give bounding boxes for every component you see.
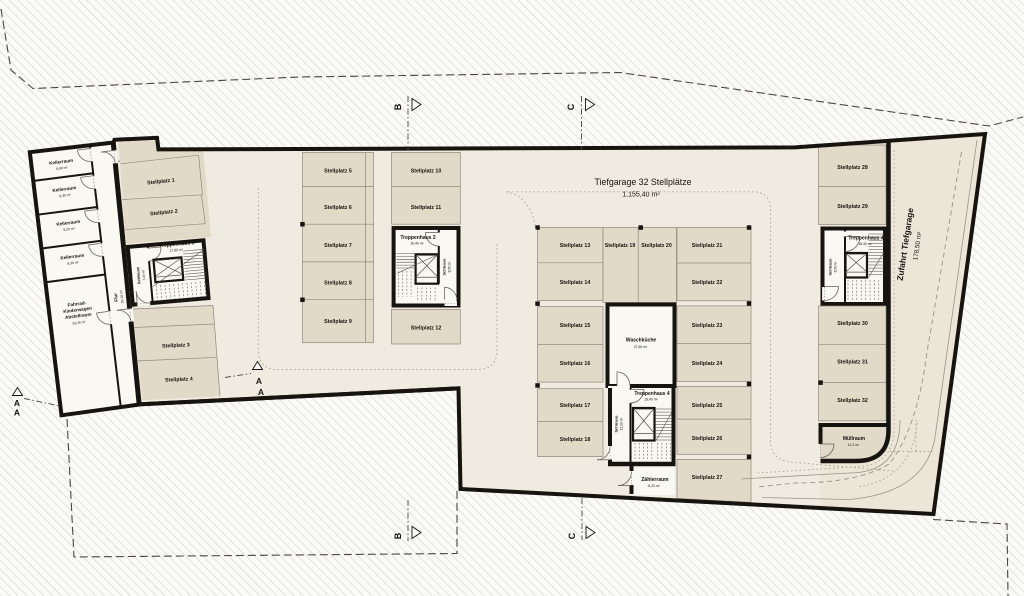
svg-text:Stellplatz 21: Stellplatz 21 <box>692 243 723 249</box>
svg-text:Stellplatz 3: Stellplatz 3 <box>162 342 190 349</box>
svg-text:Stellplatz 12: Stellplatz 12 <box>411 326 442 332</box>
svg-text:Stellplatz 18: Stellplatz 18 <box>560 437 591 443</box>
svg-text:A: A <box>256 376 262 386</box>
svg-text:Stellplatz 20: Stellplatz 20 <box>641 243 672 249</box>
svg-text:12,10 m²: 12,10 m² <box>620 418 624 431</box>
svg-text:Stellplatz 27: Stellplatz 27 <box>692 475 723 481</box>
svg-text:8,50 m²: 8,50 m² <box>448 262 452 273</box>
svg-text:Stellplatz 26: Stellplatz 26 <box>692 436 723 442</box>
svg-text:18,40 m²: 18,40 m² <box>858 242 872 246</box>
svg-text:Tiefgarage 32 Stellplätze: Tiefgarage 32 Stellplätze <box>595 177 692 187</box>
svg-text:B: B <box>393 532 403 539</box>
svg-text:C: C <box>566 103 576 110</box>
svg-text:Stellplatz 4: Stellplatz 4 <box>165 376 193 383</box>
svg-text:Stellplatz 25: Stellplatz 25 <box>692 403 723 409</box>
svg-text:Waschküche: Waschküche <box>626 338 657 344</box>
svg-text:Stellplatz 29: Stellplatz 29 <box>837 204 868 210</box>
svg-text:Stellplatz 7: Stellplatz 7 <box>324 243 352 249</box>
svg-text:Treppenhaus 4: Treppenhaus 4 <box>848 236 884 242</box>
svg-text:16,40 m²: 16,40 m² <box>410 242 424 246</box>
svg-text:Stellplatz 28: Stellplatz 28 <box>837 165 868 171</box>
svg-text:Stellplatz 13: Stellplatz 13 <box>560 243 591 249</box>
svg-text:Schleuse: Schleuse <box>442 258 447 276</box>
svg-text:Stellplatz 9: Stellplatz 9 <box>324 319 352 325</box>
svg-text:18,40 m²: 18,40 m² <box>644 398 658 402</box>
svg-text:1.155,40 m²: 1.155,40 m² <box>622 192 660 199</box>
svg-text:Stellplatz 19: Stellplatz 19 <box>605 243 636 249</box>
svg-text:Müllraum: Müllraum <box>843 436 866 442</box>
svg-text:Treppenhaus 2: Treppenhaus 2 <box>400 235 436 241</box>
svg-text:Stellplatz 32: Stellplatz 32 <box>837 398 868 404</box>
svg-text:11,2 m²: 11,2 m² <box>848 443 860 447</box>
svg-text:A: A <box>14 398 20 408</box>
svg-text:A: A <box>258 387 264 397</box>
svg-text:27,60 m²: 27,60 m² <box>634 345 648 349</box>
svg-text:Schleuse: Schleuse <box>828 258 833 276</box>
svg-text:Stellplatz 14: Stellplatz 14 <box>560 280 591 286</box>
svg-text:8,20 m²: 8,20 m² <box>648 484 660 488</box>
svg-text:Stellplatz 10: Stellplatz 10 <box>411 169 442 175</box>
svg-text:Stellplatz 6: Stellplatz 6 <box>324 205 352 211</box>
svg-text:Stellplatz 22: Stellplatz 22 <box>692 280 723 286</box>
svg-text:B: B <box>393 103 403 110</box>
svg-text:Stellplatz 11: Stellplatz 11 <box>411 205 441 211</box>
svg-text:Stellplatz 30: Stellplatz 30 <box>837 321 868 327</box>
svg-text:Treppenhaus 4: Treppenhaus 4 <box>634 391 670 397</box>
svg-text:Zählerraum: Zählerraum <box>641 477 669 483</box>
svg-text:Stellplatz 31: Stellplatz 31 <box>837 360 868 366</box>
svg-text:Stellplatz 17: Stellplatz 17 <box>560 403 591 409</box>
svg-text:C: C <box>567 532 577 539</box>
svg-text:Flur: Flur <box>113 293 119 302</box>
svg-text:Stellplatz 16: Stellplatz 16 <box>560 361 591 367</box>
svg-text:Schleuse: Schleuse <box>614 415 619 433</box>
svg-text:A: A <box>14 408 20 418</box>
svg-text:Stellplatz 8: Stellplatz 8 <box>324 281 352 287</box>
svg-text:Stellplatz 5: Stellplatz 5 <box>324 169 352 175</box>
svg-text:Stellplatz 23: Stellplatz 23 <box>692 323 723 329</box>
svg-text:Stellplatz 24: Stellplatz 24 <box>692 361 723 367</box>
svg-text:8,50 m²: 8,50 m² <box>834 262 838 273</box>
svg-text:Stellplatz 15: Stellplatz 15 <box>560 323 591 329</box>
